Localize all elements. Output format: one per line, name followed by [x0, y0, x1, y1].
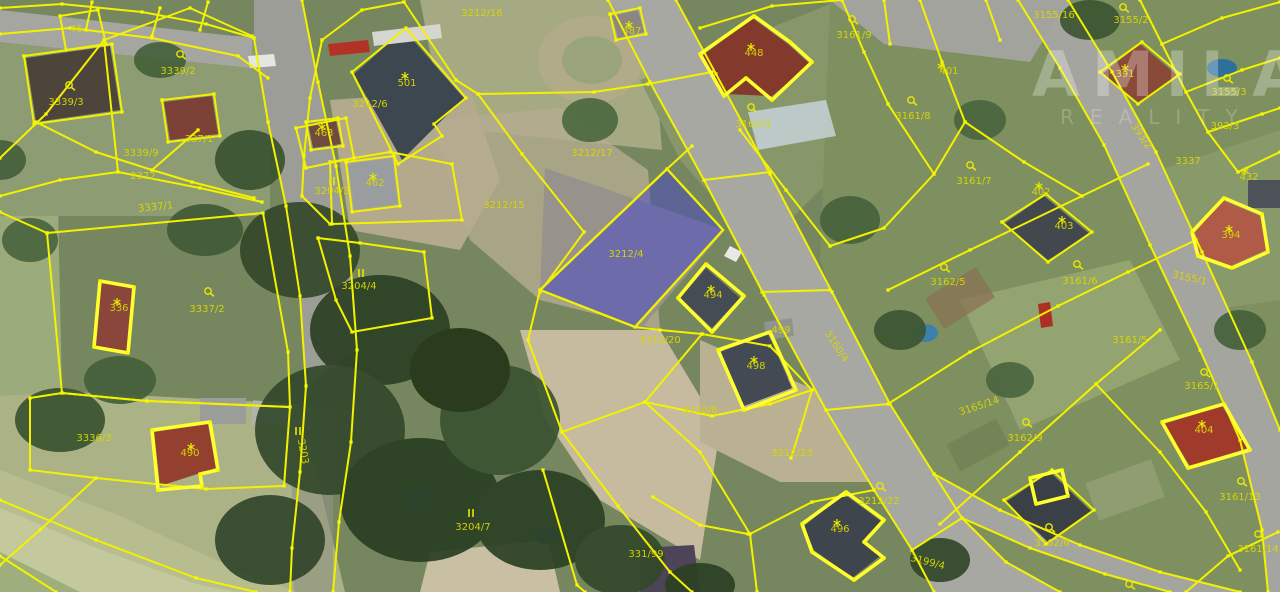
parcel-label-3212-23: 3212/23 — [771, 448, 813, 459]
parcel-label-331-99: 331/99 — [628, 549, 663, 560]
parcel-label-3339-3: 3339/3 — [48, 97, 83, 108]
terrain-shape — [874, 310, 926, 350]
parcel-label-3155-16: 3155/16 — [1033, 10, 1075, 21]
terrain-shape — [954, 100, 1006, 140]
terrain-shape — [562, 36, 622, 84]
parcel-label-401: 401 — [939, 66, 958, 77]
watermark-line2: REALITY — [1060, 105, 1254, 129]
parcel-label-3161-5: 3161/5 — [1112, 335, 1147, 346]
parcel-label-3161-9: 3161/9 — [836, 30, 871, 41]
parcel-label-3336-3: 3336/3 — [76, 433, 111, 444]
parcel-label-3337-2: 3337/2 — [189, 304, 224, 315]
parcel-label-462: 462 — [365, 178, 384, 189]
terrain-shape — [215, 130, 285, 190]
building-roof — [1248, 180, 1280, 208]
parcel-label-3212-4: 3212/4 — [608, 249, 643, 260]
parcel-label-3162-9: 3162/9 — [1007, 433, 1042, 444]
parcel-label-490: 490 — [180, 448, 199, 459]
parcel-label-3162-4: 3162/4 — [735, 119, 770, 130]
parcel-label-3212-6: 3212/6 — [352, 99, 387, 110]
parcel-label-3155-2: 3155/2 — [1113, 15, 1148, 26]
parcel-label-3161-6: 3161/6 — [1062, 276, 1097, 287]
parcel-label-3212-15: 3212/15 — [483, 200, 525, 211]
parcel-label-3339-2: 3339/2 — [160, 66, 195, 77]
parcel-label-3212-20: 3212/20 — [639, 335, 681, 346]
watermark: AMILAS REALITY — [1032, 38, 1280, 129]
parcel-label-402: 402 — [1031, 187, 1050, 198]
parcel-label-403: 403 — [1054, 221, 1073, 232]
parcel-label-487: 487 — [622, 26, 641, 37]
parcel-label-3161-7: 3161/7 — [956, 176, 991, 187]
parcel-label-404: 404 — [1194, 425, 1213, 436]
parcel-label-3162-6: 3162/6 — [1034, 538, 1069, 549]
parcel-label-3204-7: 3204/7 — [455, 522, 490, 533]
parcel-label-3204-4: 3204/4 — [341, 281, 376, 292]
parcel-label-432: 432 — [1239, 172, 1258, 183]
parcel-label-463: 463 — [314, 128, 333, 139]
parcel-label-3212-16: 3212/16 — [461, 8, 503, 19]
parcel-label-498: 498 — [746, 361, 765, 372]
building-roof — [96, 283, 132, 351]
parcel-label-3161-8: 3161/8 — [895, 111, 930, 122]
parcel-label-337-1: 337/1 — [185, 134, 214, 145]
parcel-label-3165-1: 3165/1 — [1184, 381, 1219, 392]
building-roof — [200, 398, 246, 424]
parcel-label-3212-17: 3212/17 — [571, 148, 613, 159]
cadastral-map-viewport[interactable]: 463339/23339/33339/9337/123723337/133633… — [0, 0, 1280, 592]
parcel-label-3339-9: 3339/9 — [123, 148, 158, 159]
parcel-label-499: 499 — [771, 325, 790, 336]
parcel-label-496: 496 — [830, 524, 849, 535]
cadastral-map: 463339/23339/33339/9337/123723337/133633… — [0, 0, 1280, 592]
terrain-shape — [820, 196, 880, 244]
parcel-label-46: 46 — [70, 24, 83, 35]
parcel-label-3204-3: 3204/3 — [314, 186, 349, 197]
parcel-label-394: 394 — [1221, 230, 1240, 241]
parcel-label-3337: 3337 — [1175, 156, 1200, 167]
parcel-label-3162-5: 3162/5 — [930, 277, 965, 288]
terrain-shape — [1214, 310, 1266, 350]
parcel-label-448: 448 — [744, 48, 763, 59]
parcel-label-336: 336 — [109, 303, 128, 314]
parcel-label-3212-22: 3212/22 — [858, 496, 900, 507]
parcel-label-3161-14: 3161/14 — [1237, 544, 1279, 555]
terrain-shape — [410, 328, 510, 412]
terrain-shape — [986, 362, 1034, 398]
parcel-label-3210-8: 3210/8 — [682, 405, 717, 416]
watermark-line1: AMILAS — [1032, 38, 1280, 111]
terrain-shape — [562, 98, 618, 142]
terrain-shape — [215, 495, 325, 585]
parcel-label-494: 494 — [703, 290, 722, 301]
terrain-shape — [167, 204, 243, 256]
parcel-label-3161-13: 3161/13 — [1219, 492, 1261, 503]
parcel-label-501: 501 — [397, 78, 416, 89]
parcel-label-2372: 2372 — [130, 171, 155, 182]
